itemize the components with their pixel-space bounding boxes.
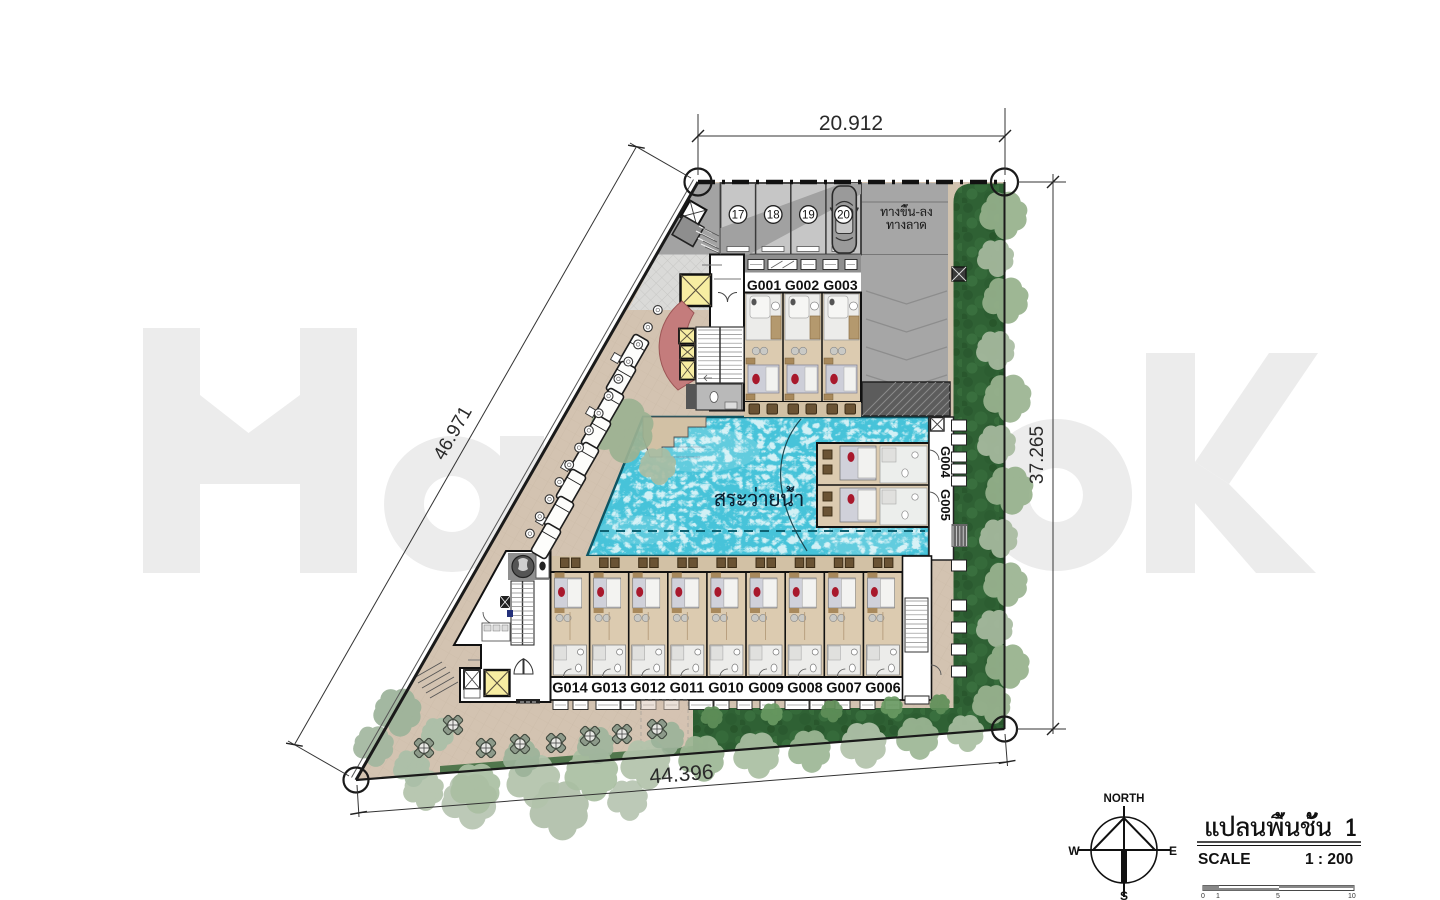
- svg-text:G008: G008: [787, 681, 822, 697]
- svg-text:G004: G004: [938, 446, 953, 479]
- svg-text:G007: G007: [826, 681, 861, 697]
- svg-text:NORTH: NORTH: [1104, 793, 1145, 805]
- svg-text:17: 17: [732, 210, 745, 222]
- svg-text:G005: G005: [938, 489, 953, 521]
- svg-text:G001: G001: [747, 277, 781, 293]
- svg-text:20.912: 20.912: [819, 112, 883, 135]
- svg-text:SCALE: SCALE: [1198, 851, 1251, 868]
- svg-text:W: W: [1068, 844, 1080, 858]
- svg-text:G009: G009: [748, 681, 783, 697]
- svg-text:G012: G012: [630, 681, 665, 697]
- svg-text:10: 10: [1348, 893, 1356, 900]
- svg-text:G014: G014: [552, 681, 587, 697]
- svg-text:1 : 200: 1 : 200: [1305, 851, 1353, 868]
- svg-text:G006: G006: [865, 681, 900, 697]
- svg-text:1: 1: [1216, 893, 1220, 900]
- svg-text:18: 18: [767, 210, 780, 222]
- svg-text:G013: G013: [591, 681, 626, 697]
- svg-text:5: 5: [1276, 893, 1280, 900]
- svg-text:0: 0: [1201, 893, 1205, 900]
- svg-text:G002: G002: [785, 277, 819, 293]
- svg-text:37.265: 37.265: [1027, 426, 1048, 484]
- svg-text:E: E: [1169, 844, 1177, 858]
- svg-text:19: 19: [802, 210, 815, 222]
- svg-text:G010: G010: [708, 681, 743, 697]
- svg-text:20: 20: [837, 210, 850, 222]
- svg-text:S: S: [1120, 889, 1128, 900]
- svg-text:G011: G011: [670, 681, 705, 697]
- svg-text:G003: G003: [823, 277, 857, 293]
- svg-text:44.396: 44.396: [649, 761, 715, 789]
